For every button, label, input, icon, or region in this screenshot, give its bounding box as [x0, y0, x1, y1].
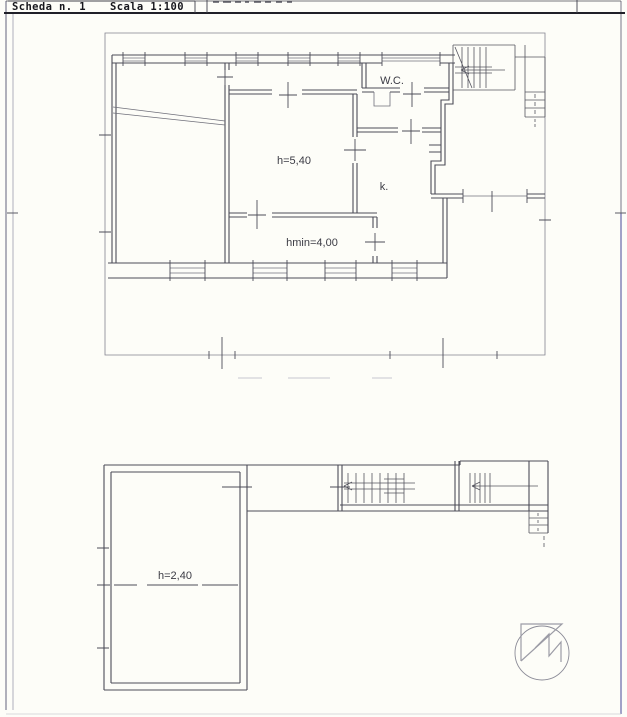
sheet-number-label: Scheda n. 1 — [12, 1, 86, 13]
plan-drawing: Scheda n. 1 Scala 1:100 W.C. h=5,40 k. h… — [0, 0, 627, 717]
north-arrow-icon — [515, 624, 569, 680]
room-label-basement-height: h=2,40 — [158, 570, 192, 582]
scale-label: Scala 1:100 — [110, 1, 184, 13]
basement-staircases — [344, 473, 548, 547]
room-label-min-height: hmin=4,00 — [286, 237, 338, 249]
staircase — [453, 45, 545, 127]
floor-plan-sheet: Scheda n. 1 Scala 1:100 W.C. h=5,40 k. h… — [0, 0, 627, 717]
room-label-wc: W.C. — [380, 75, 404, 87]
room-label-kitchen: k. — [380, 181, 389, 193]
room-label-hall-height: h=5,40 — [277, 155, 311, 167]
door-marks — [217, 70, 441, 251]
ground-floor-plan: W.C. h=5,40 k. hmin=4,00 — [99, 33, 551, 369]
north-arrow-glyph — [521, 624, 562, 662]
title-block: Scheda n. 1 Scala 1:100 — [4, 0, 625, 13]
basement-floor-plan: h=2,40 — [97, 461, 548, 690]
boundary-ticks — [99, 135, 551, 369]
title-block-boxes — [8, 0, 577, 13]
plot-boundary — [105, 33, 545, 355]
interior-thin-lines — [113, 92, 390, 125]
